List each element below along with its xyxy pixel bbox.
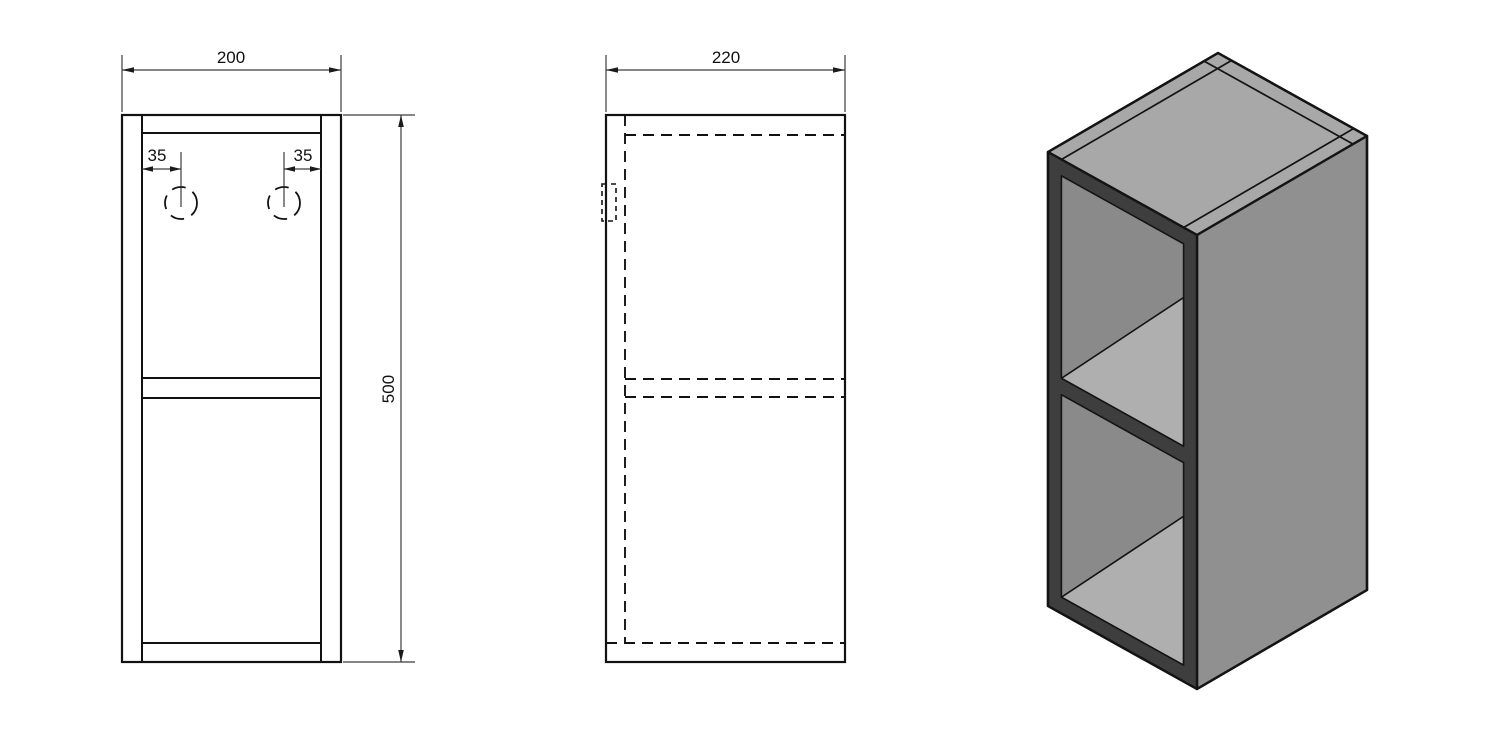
technical-drawing-canvas: 35 35 200 500 (0, 0, 1500, 735)
dim-label-hole-offset-right: 35 (294, 146, 313, 165)
dim-label-width: 200 (217, 48, 245, 67)
front-cabinet-outline (122, 115, 341, 662)
hidden-hanging-bracket (602, 184, 616, 221)
dimension-hole-offset-right: 35 (284, 146, 321, 172)
dimension-height: 500 (343, 115, 415, 662)
dim-label-hole-offset-left: 35 (148, 146, 167, 165)
side-cabinet-outline (606, 115, 845, 662)
drawing-svg: 35 35 200 500 (0, 0, 1500, 735)
dim-label-depth: 220 (712, 48, 740, 67)
dimension-width: 200 (122, 48, 341, 112)
dimension-hole-offset-left: 35 (142, 146, 181, 172)
side-view: 220 (602, 48, 845, 662)
dim-label-height: 500 (379, 375, 398, 403)
front-view: 35 35 200 500 (122, 48, 415, 662)
isometric-view (1048, 53, 1367, 689)
dimension-depth: 220 (606, 48, 845, 112)
